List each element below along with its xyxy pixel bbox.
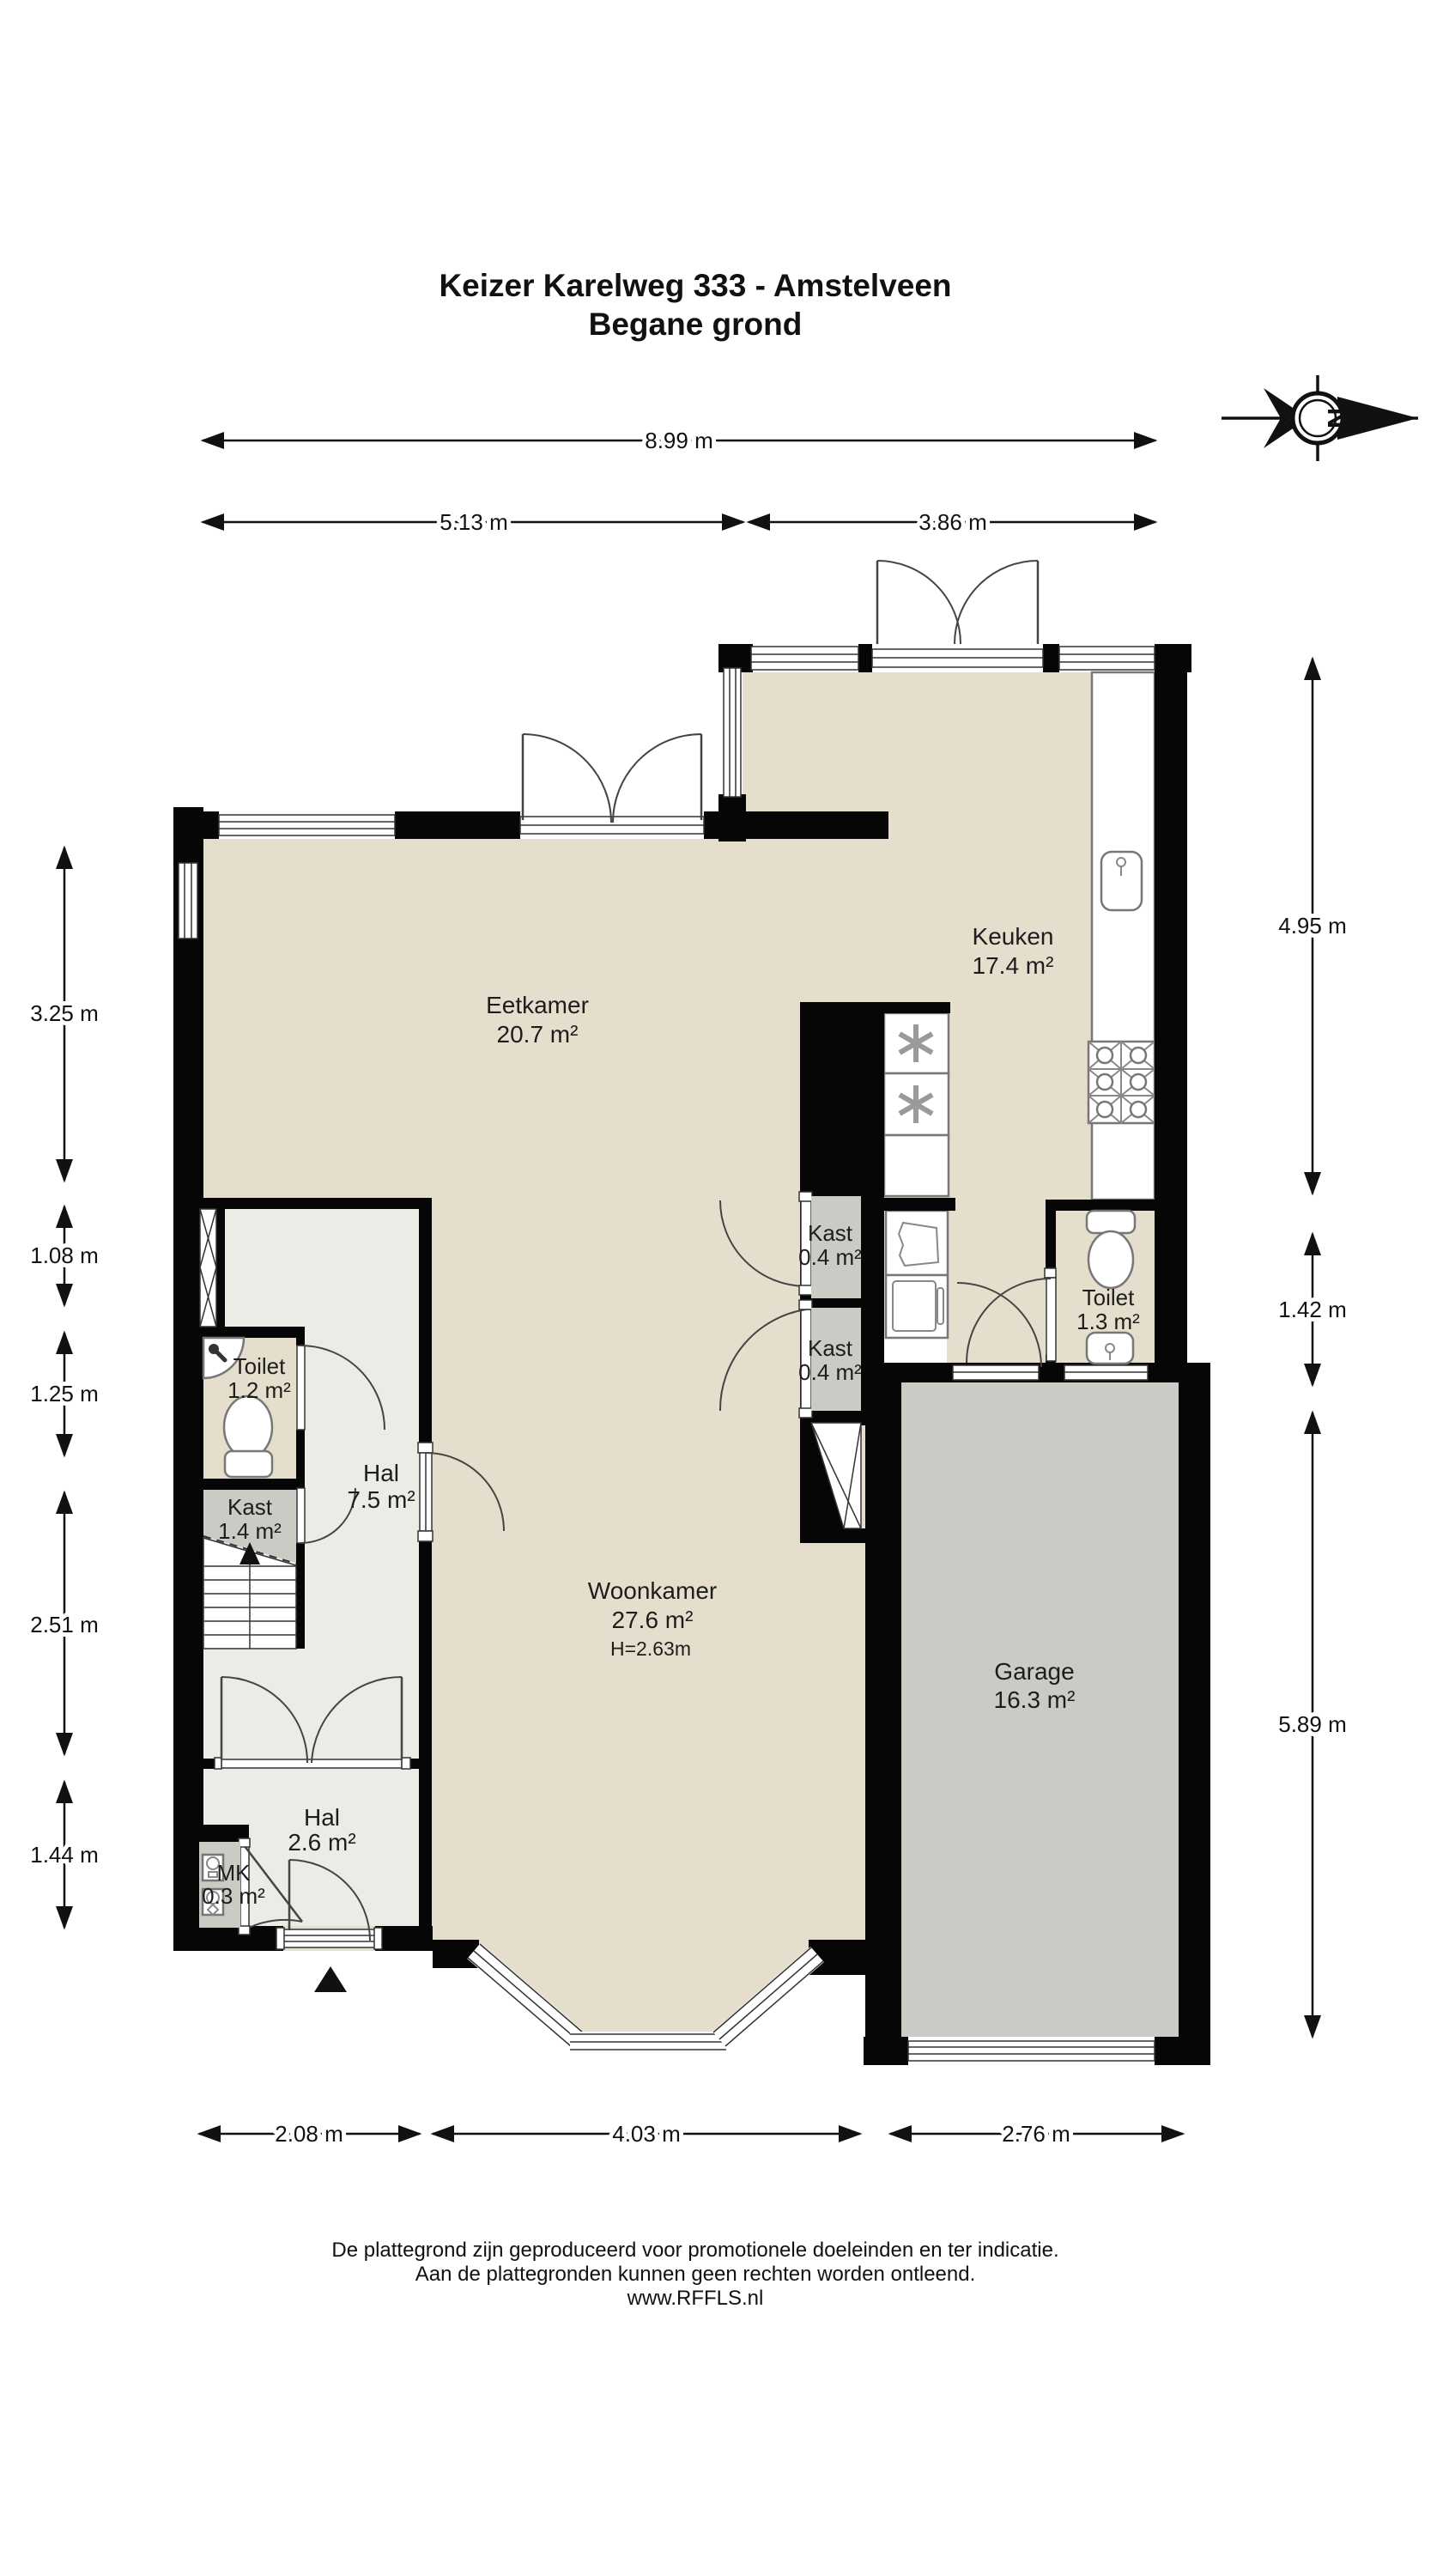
sink-icon — [1087, 1333, 1133, 1364]
duct-shaft — [200, 1209, 216, 1327]
cabinet-box — [884, 1135, 949, 1196]
floorplan-canvas: Keizer Karelweg 333 - Amstelveen Begane … — [0, 0, 1449, 2576]
dim-top-total: 8.99 m — [645, 428, 713, 453]
toilet-icon — [224, 1396, 272, 1477]
footer-disclaimer: De plattegrond zijn geproduceerd voor pr… — [331, 2239, 1058, 2310]
dim-right-1: 4.95 m — [1278, 913, 1347, 939]
room-name: Eetkamer — [486, 992, 589, 1018]
window — [724, 668, 741, 797]
room-area: 20.7 m² — [497, 1021, 579, 1048]
room-name: Woonkamer — [588, 1577, 717, 1604]
room-name: Toilet — [233, 1353, 286, 1379]
dim-left-1: 3.25 m — [30, 1000, 99, 1026]
garden-door — [520, 734, 704, 834]
room-area: 1.4 m² — [218, 1518, 282, 1544]
garden-door — [872, 561, 1043, 667]
dim-bottom-1: 2.08 m — [275, 2121, 343, 2147]
room-area: 27.6 m² — [612, 1607, 694, 1633]
room-name: Kast — [808, 1335, 853, 1361]
room-name: Hal — [363, 1460, 399, 1486]
toilet-icon — [1087, 1211, 1135, 1288]
room-name: Keuken — [973, 923, 1054, 950]
dim-left-3: 1.25 m — [30, 1381, 99, 1406]
garage-door — [908, 2041, 1155, 2061]
room-name: Kast — [227, 1494, 273, 1520]
room-ceiling-height: H=2.63m — [610, 1637, 691, 1660]
entrance-arrow-icon — [314, 1966, 347, 1992]
stove-icon — [1088, 1042, 1155, 1123]
room-area: 7.5 m² — [347, 1486, 415, 1513]
north-compass: N — [1222, 375, 1418, 461]
window — [1064, 1365, 1148, 1380]
room-area: 17.4 m² — [973, 952, 1054, 979]
room-label-toilet-hal: Toilet 1.2 m² — [227, 1353, 291, 1403]
room-area: 0.4 m² — [798, 1244, 862, 1270]
dim-left-2: 1.08 m — [30, 1242, 99, 1268]
room-name: Garage — [994, 1658, 1074, 1685]
dim-top-left: 5.13 m — [440, 509, 508, 535]
dim-bottom-2: 4.03 m — [612, 2121, 681, 2147]
dim-left-5: 1.44 m — [30, 1842, 99, 1868]
title-line1: Keizer Karelweg 333 - Amstelveen — [439, 268, 951, 303]
north-letter: N — [1321, 408, 1354, 429]
dim-right-2: 1.42 m — [1278, 1297, 1347, 1322]
room-area: 0.4 m² — [798, 1359, 862, 1385]
room-name: MK — [217, 1860, 252, 1886]
dim-left-4: 2.51 m — [30, 1612, 99, 1637]
appliance-column — [884, 1013, 949, 1338]
footer-line2: Aan de plattegronden kunnen geen rechten… — [415, 2263, 976, 2286]
page-title: Keizer Karelweg 333 - Amstelveen Begane … — [439, 268, 951, 342]
dim-top-right: 3.86 m — [919, 509, 987, 535]
oven-icon — [886, 1275, 948, 1338]
floorplan-page: Keizer Karelweg 333 - Amstelveen Begane … — [0, 0, 1449, 2576]
room-area: 1.3 m² — [1076, 1309, 1140, 1334]
room-name: Toilet — [1082, 1285, 1135, 1310]
room-label-toilet-keuken: Toilet 1.3 m² — [1076, 1285, 1140, 1334]
room-area: 16.3 m² — [994, 1686, 1076, 1713]
dim-bottom-3: 2.76 m — [1002, 2121, 1070, 2147]
room-name: Hal — [304, 1804, 340, 1831]
window — [1059, 647, 1155, 670]
room-name: Kast — [808, 1220, 853, 1246]
footer-line3: www.RFFLS.nl — [627, 2287, 764, 2310]
window — [751, 647, 858, 670]
window — [179, 863, 197, 939]
room-area: 1.2 m² — [227, 1377, 291, 1403]
room-area: 2.6 m² — [288, 1829, 355, 1856]
window — [219, 815, 395, 835]
title-line2: Begane grond — [589, 307, 803, 342]
room-area: 0.3 m² — [202, 1883, 265, 1909]
dim-right-3: 5.89 m — [1278, 1711, 1347, 1737]
sink-icon — [1101, 852, 1142, 910]
footer-line1: De plattegrond zijn geproduceerd voor pr… — [331, 2239, 1058, 2262]
